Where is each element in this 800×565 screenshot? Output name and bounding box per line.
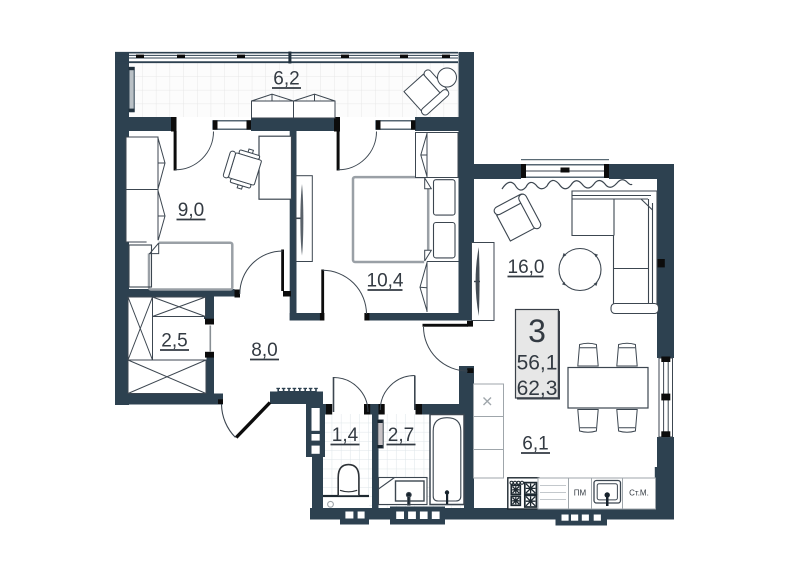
svg-text:9,0: 9,0 xyxy=(178,200,204,221)
svg-text:2,5: 2,5 xyxy=(161,331,187,352)
svg-text:2,7: 2,7 xyxy=(388,425,414,446)
svg-text:8,0: 8,0 xyxy=(251,340,277,361)
svg-text:6,2: 6,2 xyxy=(273,69,299,90)
svg-text:1,4: 1,4 xyxy=(332,425,359,446)
svg-text:3: 3 xyxy=(528,313,546,349)
svg-text:10,4: 10,4 xyxy=(367,271,404,292)
svg-text:Ст.М.: Ст.М. xyxy=(629,489,649,498)
svg-text:56,1: 56,1 xyxy=(517,351,558,374)
svg-text:6,1: 6,1 xyxy=(522,434,548,455)
svg-text:16,0: 16,0 xyxy=(508,257,545,278)
svg-text:ПМ: ПМ xyxy=(574,489,587,498)
svg-text:62,3: 62,3 xyxy=(517,377,558,400)
